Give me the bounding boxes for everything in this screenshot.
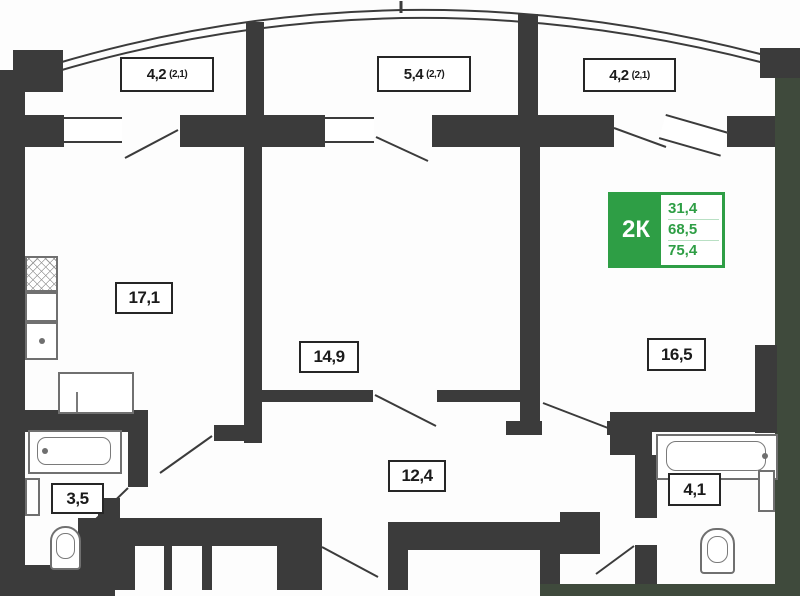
room-area-label-right-room: 16,5 bbox=[647, 338, 706, 371]
room-area-label-bath-right: 4,1 bbox=[668, 473, 721, 506]
sink bbox=[25, 478, 40, 516]
wall bbox=[760, 48, 800, 78]
wall bbox=[13, 50, 63, 92]
wall bbox=[520, 115, 540, 435]
toilet-bowl bbox=[707, 536, 728, 563]
door-leaf bbox=[375, 395, 436, 426]
room-area-label-bath-left: 3,5 bbox=[51, 483, 104, 514]
window bbox=[64, 117, 122, 143]
exterior-wall bbox=[775, 50, 800, 596]
toilet bbox=[50, 526, 81, 570]
bathtub-drain bbox=[42, 448, 48, 454]
exterior-wall bbox=[540, 584, 800, 596]
wall bbox=[262, 390, 373, 402]
room-area-label-kitchen-living: 17,1 bbox=[115, 282, 173, 314]
wall bbox=[388, 550, 408, 590]
door-leaf bbox=[543, 403, 608, 428]
balcony-area-reduced: (2,1) bbox=[169, 69, 187, 80]
door-leaf bbox=[322, 547, 378, 577]
wall bbox=[164, 546, 172, 590]
wall bbox=[727, 116, 778, 147]
door-leaf bbox=[376, 137, 428, 161]
bathtub bbox=[28, 430, 122, 474]
room-area-label-center-room: 14,9 bbox=[299, 341, 359, 373]
bathtub-basin bbox=[666, 441, 766, 471]
wall bbox=[0, 70, 25, 596]
wall bbox=[277, 546, 322, 590]
balcony-area: 4,2 bbox=[609, 67, 628, 84]
wall bbox=[635, 455, 657, 518]
wall bbox=[560, 512, 600, 554]
door-leaf bbox=[160, 436, 212, 473]
wall bbox=[755, 345, 777, 433]
floor-plan: 4,2 (2,1) 5,4 (2,7) 4,2 (2,1) 17,1 14,9 … bbox=[0, 0, 800, 596]
wall bbox=[437, 390, 523, 402]
wall bbox=[506, 421, 542, 435]
unit-type: 2К bbox=[611, 195, 661, 265]
wall bbox=[13, 115, 64, 147]
balcony-area: 5,4 bbox=[404, 66, 423, 83]
wall bbox=[78, 518, 322, 546]
window bbox=[325, 117, 374, 143]
unit-area-value: 75,4 bbox=[668, 241, 719, 261]
wall bbox=[128, 410, 148, 487]
balcony-area-label: 5,4 (2,7) bbox=[377, 56, 471, 92]
balcony-area-reduced: (2,7) bbox=[426, 69, 444, 80]
wall bbox=[214, 425, 246, 441]
sink bbox=[758, 470, 775, 512]
bathtub-drain bbox=[762, 453, 768, 459]
stove bbox=[25, 322, 58, 360]
kitchen-counter bbox=[25, 292, 58, 322]
wall bbox=[388, 522, 560, 550]
wall bbox=[610, 412, 652, 455]
unit-area-value: 31,4 bbox=[668, 199, 719, 220]
room-area-label-hallway: 12,4 bbox=[388, 460, 446, 492]
wall bbox=[202, 546, 212, 590]
counter-divider bbox=[76, 392, 78, 412]
unit-area-value: 68,5 bbox=[668, 220, 719, 241]
wall bbox=[244, 115, 262, 443]
stove-burner bbox=[39, 338, 45, 344]
kitchen-sink bbox=[25, 256, 58, 292]
door-leaf bbox=[596, 546, 634, 574]
balcony-area-label: 4,2 (2,1) bbox=[583, 58, 676, 92]
bathtub-basin bbox=[37, 437, 111, 465]
unit-areas: 31,4 68,5 75,4 bbox=[661, 195, 722, 265]
unit-type-badge: 2К 31,4 68,5 75,4 bbox=[608, 192, 725, 268]
toilet-bowl bbox=[56, 533, 75, 559]
door-leaf bbox=[125, 130, 178, 158]
balcony-area: 4,2 bbox=[147, 66, 166, 83]
balcony-area-label: 4,2 (2,1) bbox=[120, 57, 214, 92]
balcony-area-reduced: (2,1) bbox=[632, 70, 650, 81]
window bbox=[659, 114, 728, 157]
toilet bbox=[700, 528, 735, 574]
kitchen-counter bbox=[58, 372, 134, 414]
